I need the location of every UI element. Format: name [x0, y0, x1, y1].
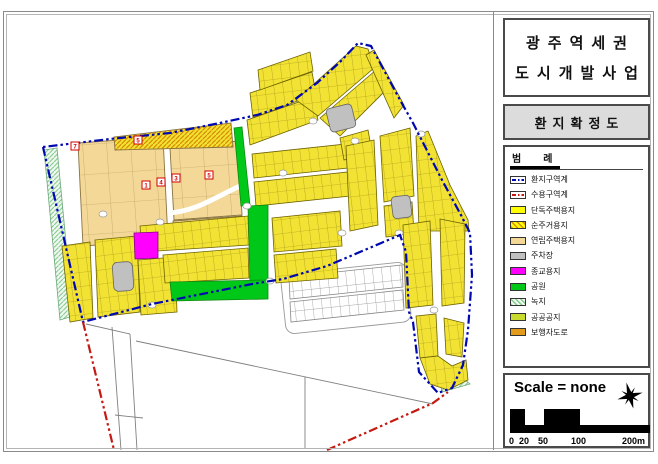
legend-title: 범례 — [510, 150, 643, 165]
scale-bar-segment — [544, 409, 580, 432]
panel-divider — [493, 12, 494, 450]
project-title-line1: 광주역세권 — [518, 32, 635, 53]
boundary-blue-swatch — [510, 176, 526, 184]
yellowgreen-swatch — [510, 313, 526, 321]
compass-north-icon — [615, 380, 645, 412]
scale-tick: 20 — [519, 436, 529, 446]
legend-label: 수용구역계 — [531, 189, 568, 200]
legend-item-pedestrian-road: 보행자도로 — [510, 327, 643, 338]
magenta-swatch — [510, 267, 526, 275]
scale-tick: 0 — [509, 436, 514, 446]
legend-item-pure-residential: 순주거용지 — [510, 220, 643, 231]
legend-item-greenbelt: 녹지 — [510, 296, 643, 307]
legend-label: 공원 — [531, 281, 546, 292]
dash-line — [512, 179, 524, 181]
legend-label: 순주거용지 — [531, 220, 568, 231]
legend-item-row-housing: 연립주택용지 — [510, 235, 643, 246]
yellow-swatch — [510, 206, 526, 214]
legend-label: 공공공지 — [531, 312, 560, 323]
legend-item-public-open: 공공공지 — [510, 312, 643, 323]
scale-bar-baseline — [510, 425, 650, 432]
legend-item-hwanji-boundary: 환지구역계 — [510, 174, 643, 185]
scale-tick: 200m — [622, 436, 645, 446]
legend-label: 보행자도로 — [531, 327, 568, 338]
gray-swatch — [510, 252, 526, 260]
scale-bar — [510, 409, 650, 432]
legend-label: 종교용지 — [531, 266, 560, 277]
green-swatch — [510, 283, 526, 291]
legend: 범례 환지구역계 수용구역계 단독주택용지 순주거용지 연립주택용지 주차장 — [503, 145, 650, 368]
orange-swatch — [510, 328, 526, 336]
drawing-title: 환지확정도 — [529, 113, 625, 132]
legend-item-parking: 주차장 — [510, 250, 643, 261]
project-title-block: 광주역세권 도시개발사업 — [503, 18, 650, 97]
drawing-title-block: 환지확정도 — [503, 104, 650, 140]
yellow-hatch-swatch — [510, 221, 526, 229]
project-title-line2: 도시개발사업 — [507, 62, 646, 83]
plan-sheet: 7 5 1 4 3 5 — [0, 0, 658, 464]
legend-item-single-housing: 단독주택용지 — [510, 205, 643, 216]
legend-item-religious: 종교용지 — [510, 266, 643, 277]
tan-swatch — [510, 237, 526, 245]
legend-label: 단독주택용지 — [531, 205, 575, 216]
dash-line — [512, 194, 524, 196]
boundary-red-swatch — [510, 191, 526, 199]
scale-tick: 50 — [538, 436, 548, 446]
legend-rule-thin — [510, 169, 643, 170]
legend-label: 연립주택용지 — [531, 235, 575, 246]
legend-label: 주차장 — [531, 250, 553, 261]
scale-tick: 100 — [571, 436, 586, 446]
legend-item-park: 공원 — [510, 281, 643, 292]
scale-bar-segment — [510, 409, 525, 432]
legend-label: 환지구역계 — [531, 174, 568, 185]
scale-block: Scale = none 0 20 50 100 200m — [503, 373, 650, 448]
legend-item-suyong-boundary: 수용구역계 — [510, 189, 643, 200]
scale-label: Scale = none — [514, 379, 606, 396]
legend-label: 녹지 — [531, 296, 546, 307]
green-hatch-swatch — [510, 298, 526, 306]
